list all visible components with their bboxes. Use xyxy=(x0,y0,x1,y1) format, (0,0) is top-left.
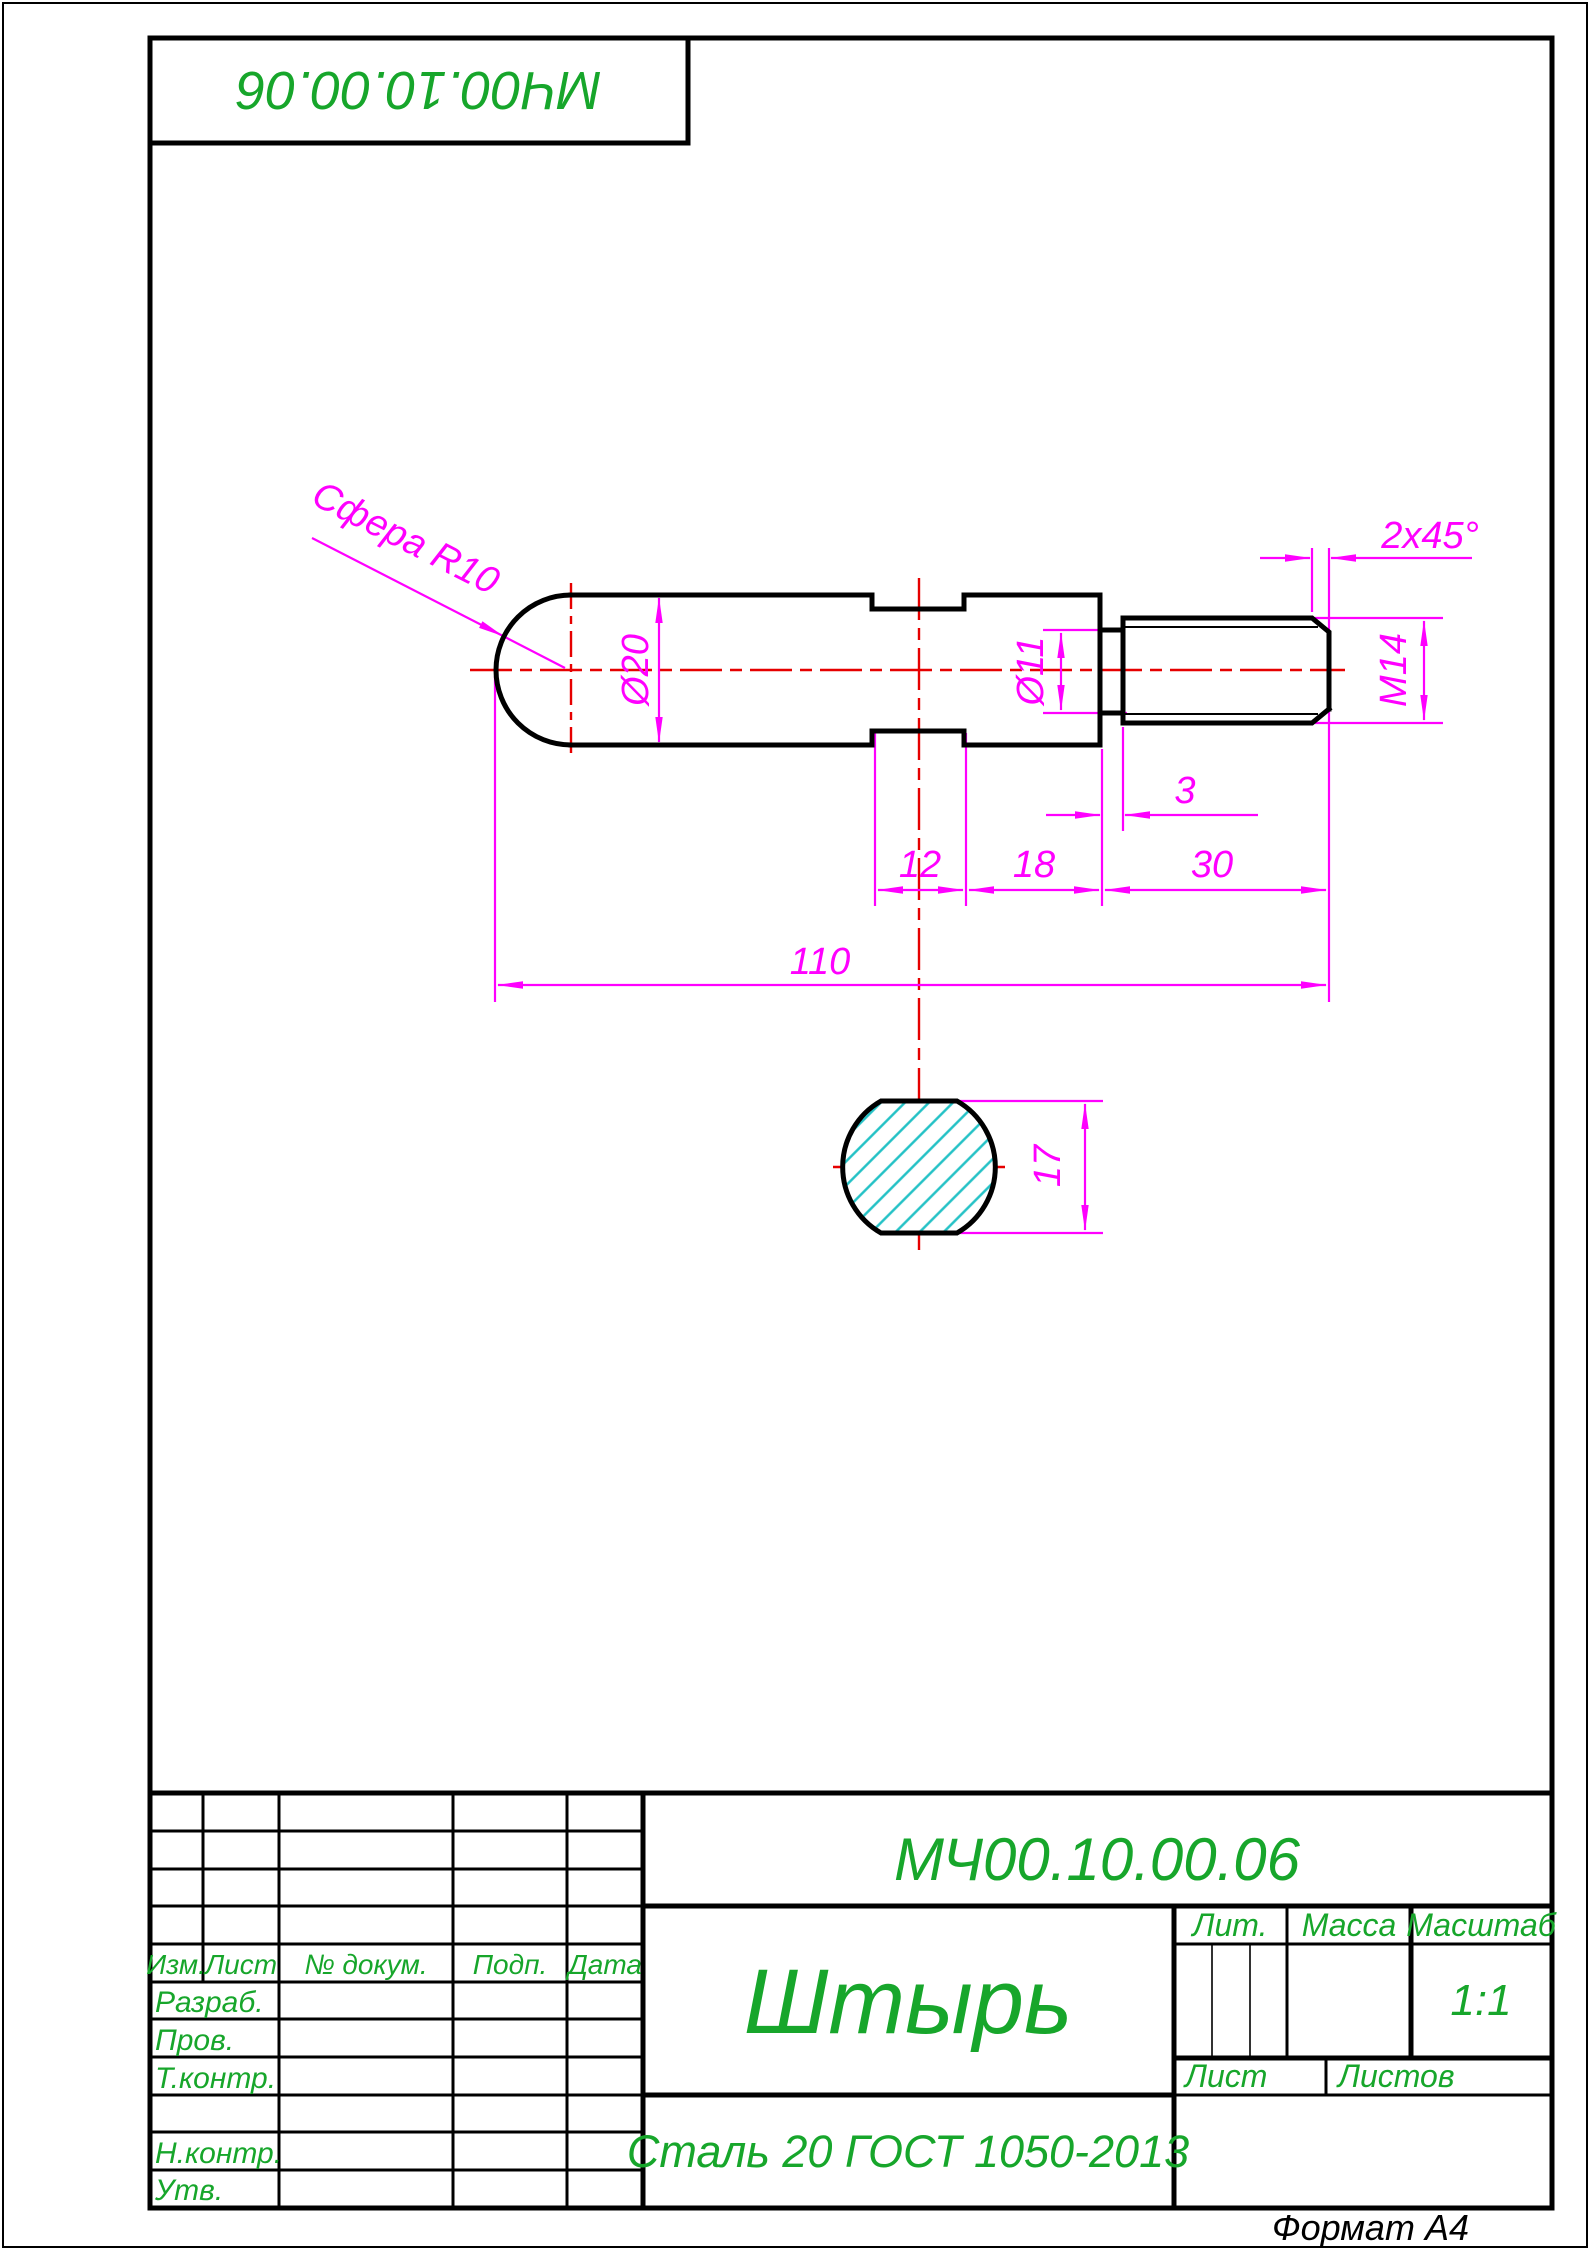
dim-text-12: 12 xyxy=(899,844,941,886)
titleblock-material: Сталь 20 ГОСТ 1050-2013 xyxy=(627,2126,1189,2177)
format-label: Формат А4 xyxy=(1272,2207,1469,2248)
title-block: МЧ00.10.00.06 Штырь Сталь 20 ГОСТ 1050-2… xyxy=(146,1793,1557,2208)
titleblock-part-name: Штырь xyxy=(744,1951,1073,2053)
dim-text-3: 3 xyxy=(1174,770,1195,812)
top-outline xyxy=(571,595,1100,609)
corner-stamp-designation: МЧ00.10.00.06 xyxy=(235,60,601,120)
section-outline-hatched xyxy=(843,1101,996,1233)
titleblock-nkontr-label: Н.контр. xyxy=(155,2137,282,2170)
dim-text-chamfer: 2x45° xyxy=(1380,515,1479,557)
drawing-sheet: МЧ00.10.00.06 xyxy=(0,0,1590,2250)
titleblock-list-header: Лист xyxy=(203,1949,277,1980)
titleblock-data-header: Дата xyxy=(565,1949,642,1980)
titleblock-razrab-label: Разраб. xyxy=(155,1986,264,2019)
sheet-svg: МЧ00.10.00.06 xyxy=(0,0,1590,2250)
dim-text-18: 18 xyxy=(1013,844,1055,886)
dimension-texts: Сфера R10 Ø20 Ø11 М14 2x45° 3 12 18 30 1… xyxy=(305,473,1478,1187)
titleblock-scale-value: 1:1 xyxy=(1450,1976,1511,2025)
titleblock-prov-label: Пров. xyxy=(155,2024,234,2057)
corner-stamp: МЧ00.10.00.06 xyxy=(150,38,688,143)
dim-text-17: 17 xyxy=(1027,1143,1069,1187)
titleblock-docnum-header: № докум. xyxy=(304,1949,427,1980)
titleblock-sheet-header: Лист xyxy=(1183,2058,1267,2094)
drawing-frame xyxy=(150,38,1552,2208)
titleblock-sheets-header: Листов xyxy=(1336,2058,1455,2094)
titleblock-tkontr-label: Т.контр. xyxy=(155,2062,276,2095)
dim-text-30: 30 xyxy=(1191,844,1233,886)
dim-text-thread-m14: М14 xyxy=(1373,633,1415,707)
titleblock-lit-header: Лит. xyxy=(1191,1907,1268,1943)
sphere-note-text: Сфера R10 xyxy=(305,473,505,603)
titleblock-scale-header: Масштаб xyxy=(1406,1907,1556,1943)
titleblock-designation: МЧ00.10.00.06 xyxy=(894,1826,1301,1893)
dim-text-diameter-11: Ø11 xyxy=(1010,636,1052,707)
titleblock-mass-header: Масса xyxy=(1302,1907,1397,1943)
titleblock-podp-header: Подп. xyxy=(473,1949,548,1980)
section-view xyxy=(843,1101,996,1233)
titleblock-utv-label: Утв. xyxy=(154,2174,223,2207)
titleblock-izm-header: Изм. xyxy=(146,1949,206,1980)
dim-text-diameter-20: Ø20 xyxy=(615,634,657,708)
bottom-outline xyxy=(571,731,1100,745)
dim-text-110: 110 xyxy=(790,941,851,983)
